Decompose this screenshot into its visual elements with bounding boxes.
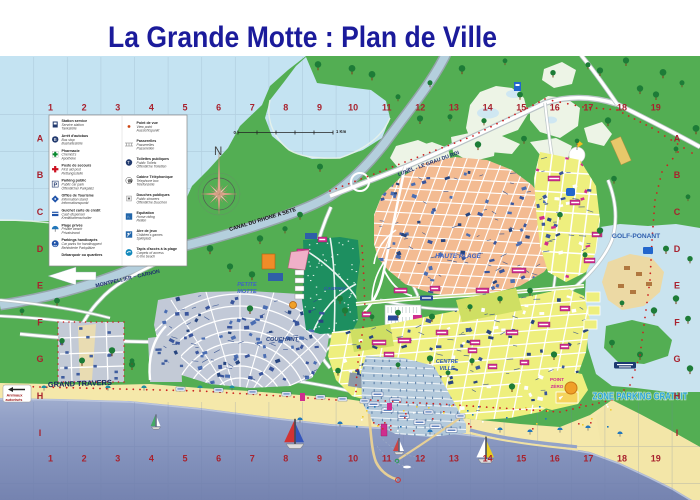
svg-text:P: P (54, 182, 58, 188)
svg-text:B: B (54, 137, 57, 142)
svg-text:16: 16 (550, 454, 560, 464)
svg-text:Apotheke: Apotheke (61, 157, 76, 161)
svg-text:F: F (37, 317, 43, 327)
svg-text:Spielplatz: Spielplatz (137, 237, 152, 241)
svg-text:Tankstelle: Tankstelle (62, 127, 77, 131)
svg-text:H: H (37, 391, 44, 401)
svg-text:B: B (674, 170, 681, 180)
svg-text:Aussichtspunkt: Aussichtspunkt (136, 129, 161, 133)
svg-text:Öffentliche Toiletten: Öffentliche Toiletten (137, 165, 167, 169)
svg-text:7: 7 (250, 103, 255, 113)
svg-text:Bushaltestelle: Bushaltestelle (62, 142, 83, 146)
svg-text:D: D (37, 244, 44, 254)
svg-text:GOLF-PONANT: GOLF-PONANT (612, 233, 660, 240)
svg-text:CAMPING: CAMPING (324, 286, 346, 291)
svg-text:C: C (674, 207, 681, 217)
svg-text:POINT: POINT (550, 377, 564, 382)
svg-text:1: 1 (48, 454, 53, 464)
svg-text:A: A (674, 133, 681, 143)
svg-text:13: 13 (449, 103, 459, 113)
svg-text:PETITE: PETITE (237, 282, 257, 288)
svg-text:3: 3 (115, 454, 120, 464)
svg-text:16: 16 (550, 103, 560, 113)
svg-text:11: 11 (382, 454, 392, 464)
svg-text:Rettungsstelle: Rettungsstelle (62, 171, 84, 175)
svg-text:F: F (674, 317, 680, 327)
svg-text:N: N (214, 146, 222, 158)
svg-text:2: 2 (82, 454, 87, 464)
svg-text:C: C (37, 207, 44, 217)
svg-text:to the beach: to the beach (137, 255, 156, 259)
svg-text:2: 2 (82, 103, 87, 113)
svg-text:3: 3 (115, 103, 120, 113)
svg-text:19: 19 (651, 103, 661, 113)
svg-text:I: I (39, 428, 42, 438)
svg-text:Privatstrand: Privatstrand (62, 231, 80, 235)
svg-text:B: B (37, 170, 44, 180)
svg-text:15: 15 (516, 454, 526, 464)
svg-text:autorisés: autorisés (6, 398, 23, 402)
svg-text:11: 11 (382, 103, 392, 113)
svg-text:4: 4 (149, 454, 154, 464)
svg-text:G: G (673, 354, 680, 364)
svg-text:ZÉRO: ZÉRO (551, 382, 564, 389)
svg-text:5: 5 (182, 103, 187, 113)
svg-text:COUCHANT: COUCHANT (266, 337, 299, 343)
svg-text:10: 10 (348, 103, 358, 113)
svg-text:12: 12 (415, 103, 425, 113)
svg-text:18: 18 (617, 103, 627, 113)
svg-text:CENTRE: CENTRE (436, 359, 459, 365)
svg-text:Kreditkartenschalter: Kreditkartenschalter (62, 216, 93, 220)
svg-text:9: 9 (317, 454, 322, 464)
svg-text:I: I (676, 428, 679, 438)
svg-text:14: 14 (483, 103, 493, 113)
svg-text:E: E (674, 281, 680, 291)
svg-text:Informationspunkt: Informationspunkt (62, 201, 90, 205)
svg-text:8: 8 (283, 454, 288, 464)
svg-text:7: 7 (250, 454, 255, 464)
svg-text:Öffentlicher Parkplatz: Öffentlicher Parkplatz (62, 186, 95, 190)
svg-text:14: 14 (483, 454, 493, 464)
svg-text:6: 6 (216, 454, 221, 464)
svg-text:MOTTE: MOTTE (237, 289, 257, 295)
svg-text:15: 15 (516, 103, 526, 113)
svg-text:♘: ♘ (127, 215, 131, 220)
svg-text:HAUTE PLAGE: HAUTE PLAGE (435, 253, 482, 260)
svg-text:☎: ☎ (127, 178, 133, 183)
svg-text:E: E (37, 281, 43, 291)
svg-text:13: 13 (449, 454, 459, 464)
svg-text:VILLE: VILLE (439, 366, 455, 372)
svg-text:18: 18 (617, 454, 627, 464)
svg-text:4: 4 (149, 103, 154, 113)
svg-text:A: A (37, 133, 44, 143)
svg-text:G: G (36, 354, 43, 364)
svg-text:12: 12 (415, 454, 425, 464)
svg-text:9: 9 (317, 103, 322, 113)
svg-text:Passerellen: Passerellen (137, 147, 155, 151)
svg-text:5: 5 (182, 454, 187, 464)
svg-text:Öffentliche Duschen: Öffentliche Duschen (137, 201, 168, 205)
svg-text:Reiten: Reiten (137, 219, 147, 223)
svg-text:6: 6 (216, 103, 221, 113)
svg-text:H: H (674, 391, 681, 401)
svg-text:17: 17 (583, 103, 593, 113)
svg-text:8: 8 (283, 103, 288, 113)
svg-text:T: T (127, 160, 130, 165)
svg-text:Behinderte Parkplätze: Behinderte Parkplätze (62, 246, 95, 250)
svg-text:19: 19 (651, 454, 661, 464)
svg-text:17: 17 (583, 454, 593, 464)
svg-text:10: 10 (348, 454, 358, 464)
svg-text:1: 1 (48, 103, 53, 113)
svg-text:D: D (674, 244, 681, 254)
svg-text:1 Km: 1 Km (336, 129, 347, 134)
svg-text:Débarquoir ou quartiers: Débarquoir ou quartiers (62, 253, 103, 257)
svg-text:Telefonzelle: Telefonzelle (137, 183, 155, 187)
svg-text:La Grande Motte : Plan de Vill: La Grande Motte : Plan de Ville (108, 21, 497, 54)
